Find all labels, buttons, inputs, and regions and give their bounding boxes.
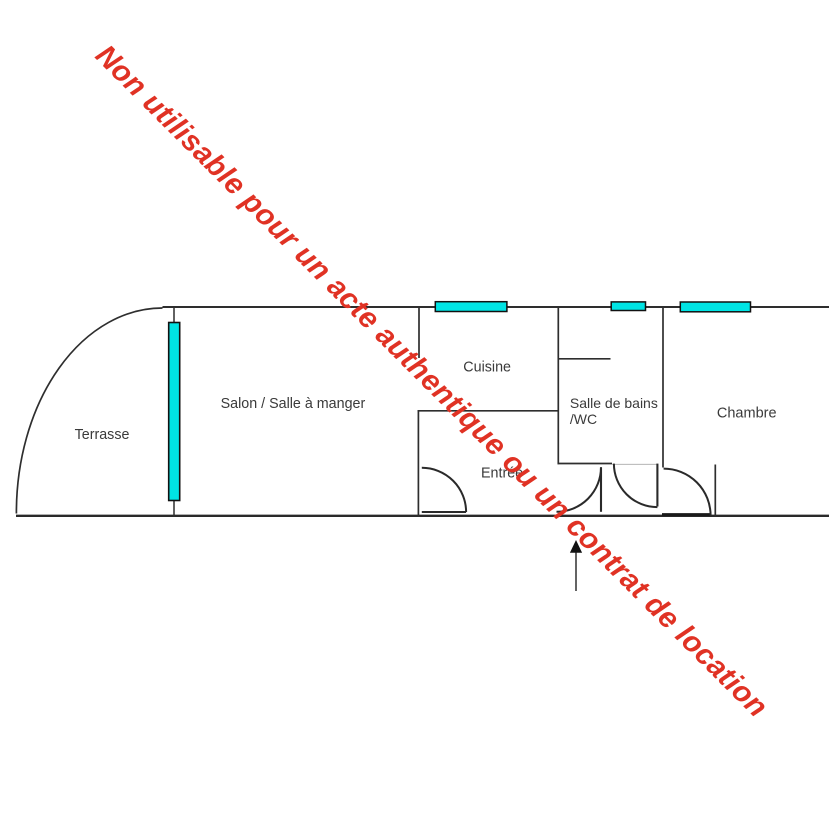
svg-text:Terrasse: Terrasse [75, 427, 130, 443]
svg-text:Chambre: Chambre [717, 406, 777, 422]
svg-text:/WC: /WC [570, 411, 597, 427]
svg-text:Salle de bains: Salle de bains [570, 395, 658, 411]
svg-text:Salon / Salle à manger: Salon / Salle à manger [221, 396, 366, 412]
svg-text:Cuisine: Cuisine [463, 360, 511, 376]
